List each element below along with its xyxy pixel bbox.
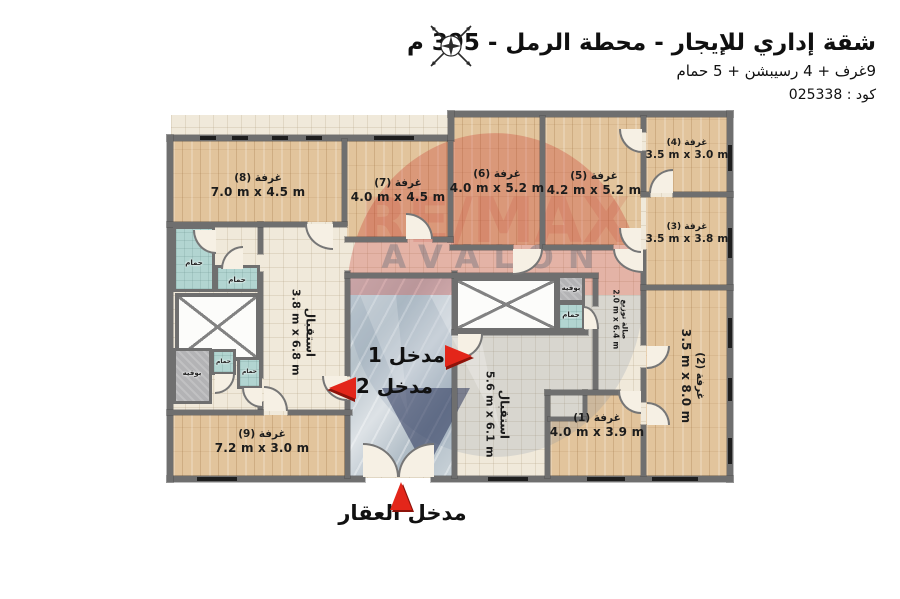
main-entrance-arrow-icon [388, 481, 416, 513]
wall-segment [543, 245, 613, 250]
room-5-label: غرفة (5) 4.2 m x 5.2 m [534, 170, 654, 198]
shaft-center [454, 277, 558, 332]
wall-segment [673, 192, 733, 197]
bathroom-5-label: حمام [557, 311, 585, 320]
listing-code: كود : 025338 [276, 87, 876, 103]
wall-segment [452, 358, 457, 478]
wall-segment [167, 410, 263, 415]
distribution-hall-label: صالة توزيع 2.0 m x 6.4 m [611, 269, 630, 369]
bathroom-2-label: حمام [217, 276, 257, 285]
window-mark [232, 136, 248, 140]
buffet-left-label: بوفيه [172, 369, 212, 378]
window-mark [652, 477, 698, 481]
bathroom-1-label: حمام [174, 259, 214, 268]
compass-rose-icon [423, 18, 479, 74]
entrance-1-label: مدخل 1 [350, 343, 445, 367]
page-title: شقة إداري للإيجار - محطة الرمل - 395 م [276, 30, 876, 56]
room-4-label: غرفة (4) 3.5 m x 3.0 m [636, 138, 738, 162]
wall-segment [448, 111, 454, 141]
wall-segment [167, 135, 173, 482]
window-mark [374, 136, 414, 140]
window-mark [488, 477, 528, 481]
reception-main-label: استقبال 5.6 m x 6.1 m [483, 354, 512, 474]
buffet-center-label: بوفيه [557, 284, 585, 293]
floor-plan-page: شقة إداري للإيجار - محطة الرمل - 395 م 9… [0, 0, 900, 599]
window-mark [728, 318, 732, 348]
window-mark [587, 477, 625, 481]
reception-left-label: استقبال 3.8 m x 6.8 m [289, 272, 318, 392]
window-mark [728, 438, 732, 464]
entrance-1-arrow-icon [443, 343, 475, 371]
wall-segment [450, 245, 513, 250]
bathroom-3-label: حمام [211, 358, 236, 366]
wall-segment [288, 410, 352, 415]
wall-segment [641, 285, 733, 290]
wall-segment [448, 111, 733, 117]
bathroom-4-label: حمام [237, 368, 262, 376]
unit-summary: 9غرف + 4 رسيبشن + 5 حمام [276, 62, 876, 80]
wall-segment [433, 237, 453, 242]
room-8-label: غرفة (8) 7.0 m x 4.5 m [198, 172, 318, 200]
room-9-label: غرفة (9) 7.2 m x 3.0 m [202, 428, 322, 456]
window-mark [272, 136, 288, 140]
window-mark [306, 136, 322, 140]
room-1-label: غرفة (1) 4.0 m x 3.9 m [537, 412, 657, 440]
window-mark [728, 378, 732, 401]
wall-segment [545, 390, 620, 395]
window-mark [197, 477, 237, 481]
room-2-label: غرفة (2) 3.5 m x 8.0 m [678, 321, 706, 431]
wall-segment [593, 328, 598, 392]
wall-segment [333, 222, 347, 227]
window-mark [200, 136, 216, 140]
entrance-2-arrow-icon [326, 375, 358, 403]
wall-segment [593, 274, 598, 306]
room-3-label: غرفة (3) 3.5 m x 3.8 m [636, 222, 738, 246]
wall-segment [345, 237, 407, 242]
wall-segment [641, 368, 646, 402]
